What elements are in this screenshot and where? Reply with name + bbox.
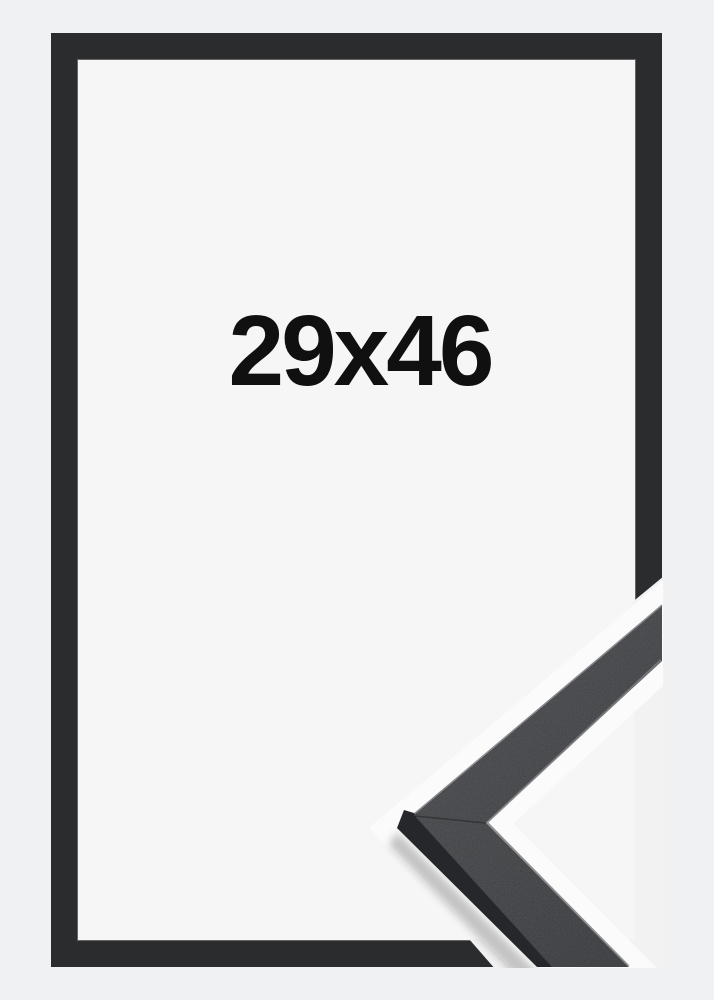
frame-opening: [78, 60, 635, 940]
product-image: 29x46: [0, 0, 714, 1000]
size-label: 29x46: [228, 295, 491, 407]
